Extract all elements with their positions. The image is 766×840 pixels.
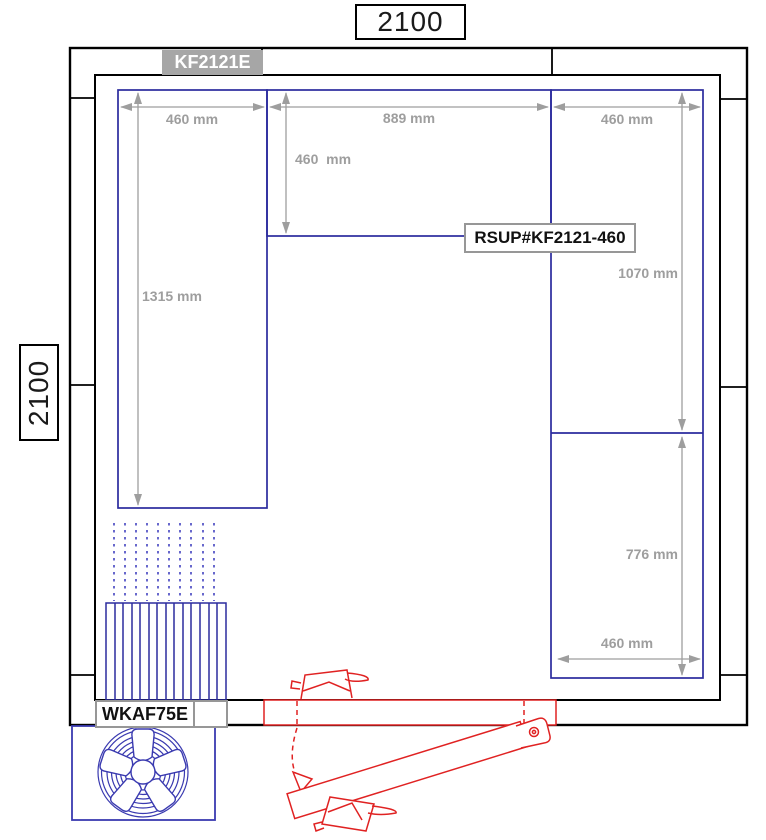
wall-panel-joint-ticks [70, 48, 747, 675]
door [264, 670, 556, 831]
evaporator-label-spare-cell [193, 700, 228, 728]
overall-height-label: 2100 [19, 344, 59, 441]
door-open-leaf [287, 718, 550, 831]
overall-width-label: 2100 [355, 4, 466, 40]
dim-top-left-shelf-width: 460 mm [130, 112, 254, 126]
dim-top-right-shelf-width: 460 mm [565, 112, 689, 126]
shelving-outline [118, 90, 703, 678]
dim-right-shelf-upper-length: 1070 mm [594, 266, 678, 280]
model-badge-text: KF2121E [174, 52, 250, 73]
evaporator-coil [106, 603, 226, 700]
right-shelf [551, 90, 703, 678]
floor-plan-canvas: 2100 2100 KF2121E RSUP#KF2121-460 WKAF75… [0, 0, 766, 840]
dim-right-shelf-lower-length: 776 mm [594, 547, 678, 561]
overall-width-value: 2100 [377, 6, 443, 38]
door-closed-leaf [264, 700, 556, 725]
dimension-lines [121, 93, 700, 675]
shelf-part-label: RSUP#KF2121-460 [464, 223, 636, 253]
dim-left-shelf-length: 1315 mm [142, 289, 202, 303]
dim-top-opening-width: 889 mm [347, 111, 471, 125]
airflow-lines [114, 523, 214, 601]
cold-room-walls [70, 48, 747, 725]
fan-icon [98, 727, 188, 817]
door-swing-arrow [292, 728, 312, 792]
model-badge: KF2121E [162, 50, 263, 75]
dim-bottom-right-shelf-width: 460 mm [567, 636, 687, 650]
condensing-unit [72, 726, 215, 820]
evaporator-label-text: WKAF75E [102, 704, 188, 725]
door-handle-icon [291, 670, 368, 699]
overall-height-value: 2100 [23, 359, 55, 425]
dim-top-shelf-depth: 460 mm [295, 152, 351, 166]
evaporator-label: WKAF75E [95, 700, 195, 728]
shelf-part-text: RSUP#KF2121-460 [474, 228, 625, 248]
